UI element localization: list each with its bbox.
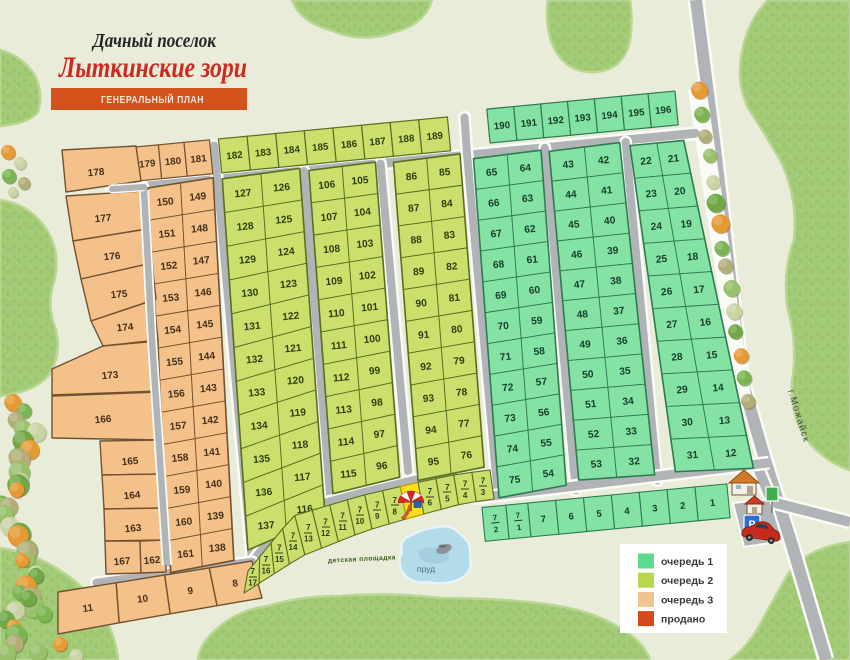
svg-text:пруд: пруд [417, 564, 435, 574]
svg-text:96: 96 [376, 461, 389, 473]
svg-text:138: 138 [208, 542, 226, 555]
svg-text:74: 74 [506, 444, 519, 456]
svg-text:48: 48 [576, 309, 589, 321]
svg-text:64: 64 [519, 163, 532, 175]
svg-text:60: 60 [528, 285, 541, 297]
svg-text:133: 133 [248, 387, 266, 400]
svg-text:82: 82 [446, 261, 459, 273]
svg-text:150: 150 [156, 196, 174, 209]
svg-text:178: 178 [87, 167, 105, 180]
svg-text:12: 12 [321, 529, 330, 538]
svg-text:103: 103 [356, 238, 374, 251]
svg-text:44: 44 [565, 189, 578, 201]
svg-text:67: 67 [490, 228, 503, 240]
svg-text:7: 7 [306, 523, 311, 532]
svg-text:75: 75 [509, 474, 522, 486]
svg-text:87: 87 [408, 203, 421, 215]
svg-text:160: 160 [175, 516, 193, 529]
svg-text:6: 6 [428, 499, 433, 508]
svg-text:30: 30 [681, 417, 694, 429]
svg-text:7: 7 [445, 483, 450, 492]
svg-text:143: 143 [199, 383, 217, 396]
svg-text:140: 140 [205, 479, 223, 492]
svg-text:99: 99 [368, 365, 381, 377]
svg-text:142: 142 [201, 415, 219, 428]
svg-text:159: 159 [173, 484, 191, 497]
svg-text:39: 39 [607, 245, 620, 257]
svg-text:7: 7 [264, 555, 269, 564]
svg-text:182: 182 [226, 150, 244, 163]
svg-text:62: 62 [524, 224, 537, 236]
svg-text:179: 179 [139, 158, 157, 171]
svg-text:19: 19 [680, 219, 693, 231]
svg-text:164: 164 [123, 490, 141, 503]
svg-text:157: 157 [169, 420, 187, 433]
svg-text:50: 50 [582, 369, 595, 381]
svg-text:102: 102 [358, 270, 376, 283]
svg-text:149: 149 [189, 191, 207, 204]
svg-text:165: 165 [121, 456, 139, 469]
svg-text:190: 190 [493, 120, 511, 133]
svg-text:53: 53 [590, 459, 603, 471]
svg-text:180: 180 [164, 156, 182, 169]
svg-text:43: 43 [562, 159, 575, 171]
svg-text:109: 109 [325, 276, 343, 289]
svg-text:192: 192 [547, 115, 565, 128]
svg-text:16: 16 [699, 317, 712, 329]
svg-text:132: 132 [246, 354, 264, 367]
svg-text:158: 158 [171, 452, 189, 465]
svg-text:28: 28 [671, 352, 684, 364]
svg-text:196: 196 [655, 104, 673, 117]
svg-text:46: 46 [571, 249, 584, 261]
svg-text:86: 86 [405, 171, 418, 183]
svg-text:147: 147 [192, 255, 210, 268]
svg-text:4: 4 [463, 491, 468, 500]
svg-text:118: 118 [291, 439, 309, 452]
svg-text:151: 151 [158, 228, 176, 241]
svg-text:84: 84 [441, 198, 454, 210]
svg-text:17: 17 [693, 284, 706, 296]
svg-text:33: 33 [625, 426, 638, 438]
svg-text:111: 111 [330, 340, 347, 353]
svg-text:20: 20 [674, 186, 687, 198]
svg-text:101: 101 [361, 302, 379, 315]
svg-text:57: 57 [535, 377, 548, 389]
svg-text:15: 15 [275, 555, 284, 564]
svg-text:29: 29 [676, 384, 689, 396]
svg-text:17: 17 [248, 579, 257, 588]
svg-text:152: 152 [160, 260, 178, 273]
svg-text:79: 79 [453, 356, 466, 368]
svg-text:32: 32 [628, 456, 641, 468]
svg-text:7: 7 [291, 532, 296, 541]
svg-text:166: 166 [94, 414, 112, 427]
svg-text:49: 49 [579, 339, 592, 351]
svg-text:продано: продано [661, 614, 705, 626]
svg-text:22: 22 [640, 156, 653, 168]
svg-text:107: 107 [320, 211, 338, 224]
svg-text:10: 10 [355, 517, 364, 526]
svg-text:145: 145 [196, 319, 214, 332]
svg-text:13: 13 [718, 415, 731, 427]
svg-text:122: 122 [282, 311, 300, 324]
svg-text:115: 115 [340, 468, 358, 481]
svg-text:52: 52 [587, 429, 600, 441]
svg-text:175: 175 [110, 289, 128, 302]
svg-text:104: 104 [353, 207, 371, 220]
svg-text:135: 135 [253, 453, 271, 466]
svg-text:85: 85 [439, 167, 452, 179]
svg-text:185: 185 [312, 141, 330, 154]
svg-text:146: 146 [194, 287, 212, 300]
svg-text:56: 56 [538, 407, 551, 419]
svg-text:27: 27 [666, 319, 679, 331]
svg-text:65: 65 [485, 167, 498, 179]
svg-text:113: 113 [335, 404, 353, 417]
svg-text:148: 148 [191, 223, 209, 236]
svg-text:15: 15 [706, 350, 719, 362]
svg-text:114: 114 [337, 436, 355, 449]
svg-text:5: 5 [445, 494, 450, 503]
svg-text:91: 91 [418, 330, 431, 342]
svg-text:21: 21 [667, 153, 680, 165]
svg-text:11: 11 [338, 523, 347, 532]
svg-text:119: 119 [289, 407, 307, 420]
svg-text:176: 176 [103, 251, 121, 264]
svg-text:131: 131 [243, 321, 261, 334]
svg-text:106: 106 [318, 179, 336, 192]
svg-text:7: 7 [358, 506, 363, 515]
svg-text:9: 9 [375, 512, 380, 521]
svg-text:161: 161 [177, 548, 195, 561]
svg-text:71: 71 [499, 351, 512, 363]
svg-text:88: 88 [410, 235, 423, 247]
svg-text:81: 81 [448, 293, 461, 305]
svg-text:80: 80 [451, 324, 464, 336]
svg-text:13: 13 [304, 535, 313, 544]
svg-text:186: 186 [340, 139, 358, 152]
svg-text:47: 47 [573, 279, 586, 291]
svg-text:34: 34 [622, 396, 635, 408]
svg-text:7: 7 [277, 543, 282, 552]
svg-text:121: 121 [284, 343, 302, 356]
svg-text:100: 100 [363, 333, 381, 346]
svg-text:187: 187 [369, 136, 387, 149]
svg-text:очередь 3: очередь 3 [661, 594, 713, 606]
svg-text:183: 183 [254, 147, 272, 160]
svg-text:154: 154 [164, 324, 182, 337]
svg-text:137: 137 [257, 520, 275, 533]
svg-text:98: 98 [371, 397, 384, 409]
svg-text:144: 144 [198, 351, 216, 364]
svg-text:156: 156 [167, 388, 185, 401]
svg-text:3: 3 [652, 503, 658, 514]
svg-text:174: 174 [116, 322, 134, 335]
svg-text:55: 55 [540, 438, 553, 450]
svg-text:128: 128 [236, 221, 254, 234]
svg-text:24: 24 [650, 221, 663, 233]
svg-text:16: 16 [262, 567, 271, 576]
svg-text:2: 2 [680, 500, 686, 511]
svg-text:Лыткинские зори: Лыткинские зори [57, 51, 247, 84]
svg-text:123: 123 [280, 278, 298, 291]
svg-text:188: 188 [398, 133, 416, 146]
svg-text:136: 136 [255, 487, 273, 500]
svg-text:14: 14 [712, 382, 725, 394]
svg-text:7: 7 [463, 479, 468, 488]
svg-text:6: 6 [568, 511, 574, 522]
svg-text:7: 7 [250, 567, 255, 576]
svg-text:7: 7 [340, 511, 345, 520]
svg-text:41: 41 [601, 185, 614, 197]
svg-text:125: 125 [275, 214, 293, 227]
svg-text:8: 8 [392, 508, 397, 517]
svg-text:117: 117 [294, 472, 312, 485]
svg-text:77: 77 [458, 418, 471, 430]
svg-text:58: 58 [533, 346, 546, 358]
svg-text:7: 7 [323, 517, 328, 526]
svg-text:153: 153 [162, 292, 180, 305]
svg-text:69: 69 [495, 290, 508, 302]
svg-text:105: 105 [351, 175, 369, 188]
svg-text:40: 40 [604, 215, 617, 227]
svg-text:14: 14 [289, 543, 298, 552]
svg-text:25: 25 [655, 254, 668, 266]
svg-text:3: 3 [481, 488, 486, 497]
svg-text:95: 95 [427, 456, 440, 468]
svg-text:23: 23 [645, 188, 658, 200]
svg-text:7: 7 [540, 514, 546, 525]
svg-text:167: 167 [113, 556, 131, 569]
svg-text:139: 139 [207, 510, 225, 523]
svg-text:72: 72 [502, 382, 515, 394]
svg-text:162: 162 [143, 555, 161, 568]
svg-text:73: 73 [504, 413, 517, 425]
svg-text:92: 92 [420, 361, 433, 373]
svg-text:141: 141 [203, 447, 221, 460]
svg-text:очередь 2: очередь 2 [661, 575, 713, 587]
svg-text:163: 163 [124, 523, 142, 536]
svg-text:очередь 1: очередь 1 [661, 556, 713, 568]
svg-text:155: 155 [166, 356, 184, 369]
svg-text:90: 90 [415, 298, 428, 310]
svg-text:124: 124 [277, 246, 295, 259]
svg-text:195: 195 [628, 107, 646, 120]
svg-text:45: 45 [568, 219, 581, 231]
svg-text:184: 184 [283, 144, 301, 157]
svg-text:94: 94 [425, 425, 438, 437]
svg-text:11: 11 [82, 603, 94, 615]
svg-text:7: 7 [481, 477, 486, 486]
svg-text:ГЕНЕРАЛЬНЫЙ ПЛАН: ГЕНЕРАЛЬНЫЙ ПЛАН [101, 93, 204, 106]
svg-text:66: 66 [488, 198, 501, 210]
svg-text:134: 134 [250, 420, 268, 433]
svg-text:191: 191 [520, 117, 538, 130]
svg-text:76: 76 [460, 450, 473, 462]
svg-text:37: 37 [613, 306, 626, 318]
svg-text:63: 63 [521, 193, 534, 205]
svg-text:181: 181 [190, 153, 208, 166]
svg-text:12: 12 [725, 448, 738, 460]
svg-text:93: 93 [422, 393, 435, 405]
svg-text:193: 193 [574, 112, 592, 125]
svg-text:129: 129 [239, 254, 257, 267]
svg-text:7: 7 [375, 501, 380, 510]
svg-text:7: 7 [428, 487, 433, 496]
svg-text:Дачный поселок: Дачный поселок [91, 30, 216, 52]
svg-text:68: 68 [492, 259, 505, 271]
svg-text:10: 10 [136, 593, 149, 606]
svg-text:173: 173 [101, 370, 119, 383]
svg-text:194: 194 [601, 110, 619, 123]
svg-text:18: 18 [687, 251, 700, 263]
svg-text:7: 7 [392, 496, 397, 505]
svg-text:59: 59 [531, 315, 544, 327]
svg-text:78: 78 [456, 387, 469, 399]
svg-text:42: 42 [597, 155, 610, 167]
svg-text:120: 120 [287, 375, 305, 388]
svg-text:83: 83 [443, 230, 456, 242]
svg-text:126: 126 [273, 182, 291, 195]
svg-text:54: 54 [542, 468, 555, 480]
svg-text:97: 97 [373, 429, 386, 441]
svg-text:35: 35 [619, 366, 632, 378]
svg-text:108: 108 [323, 244, 341, 257]
svg-text:38: 38 [610, 275, 623, 287]
svg-text:127: 127 [234, 188, 252, 201]
svg-text:36: 36 [616, 336, 629, 348]
svg-text:26: 26 [661, 286, 674, 298]
svg-text:130: 130 [241, 287, 259, 300]
svg-text:51: 51 [585, 399, 598, 411]
svg-text:70: 70 [497, 321, 510, 333]
svg-text:189: 189 [426, 130, 444, 143]
svg-text:89: 89 [413, 266, 426, 278]
svg-text:177: 177 [94, 213, 112, 226]
svg-text:61: 61 [526, 254, 539, 266]
svg-text:31: 31 [686, 450, 699, 462]
svg-text:110: 110 [328, 308, 346, 321]
svg-text:112: 112 [333, 372, 351, 385]
